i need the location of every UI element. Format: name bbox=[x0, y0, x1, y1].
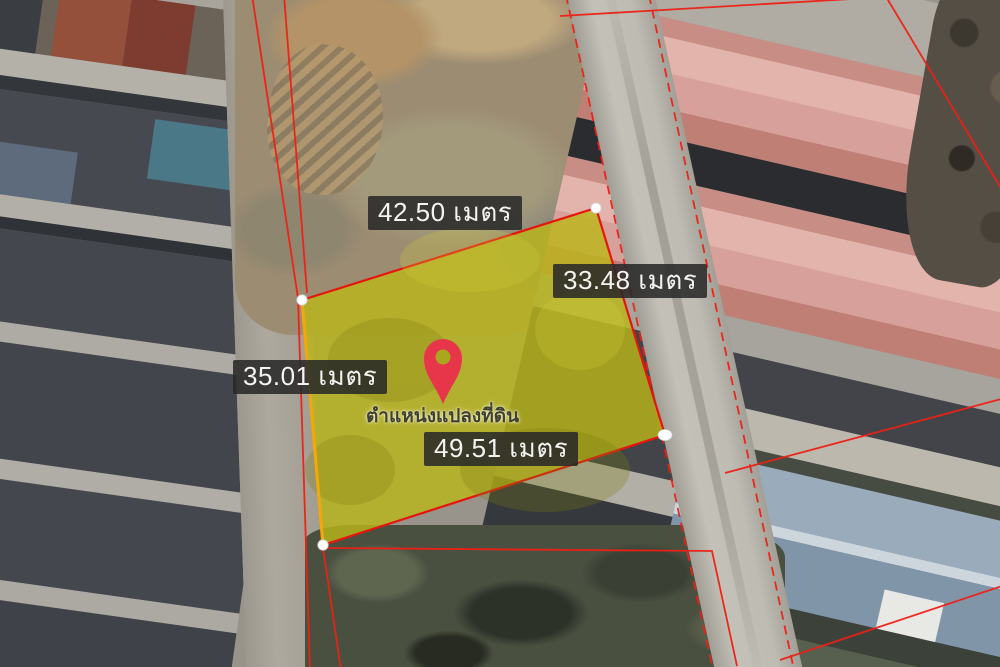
dimension-label-bottom: 49.51 เมตร bbox=[424, 432, 578, 466]
dimension-label-right: 33.48 เมตร bbox=[553, 264, 707, 298]
parcel-lines-overlay bbox=[0, 0, 1000, 667]
dimension-label-left: 35.01 เมตร bbox=[233, 360, 387, 394]
plot-location-caption: ตำแหน่งแปลงที่ดิน bbox=[330, 401, 555, 431]
dimension-label-top: 42.50 เมตร bbox=[368, 196, 522, 230]
aerial-map-image: 42.50 เมตร 33.48 เมตร 35.01 เมตร 49.51 เ… bbox=[0, 0, 1000, 667]
